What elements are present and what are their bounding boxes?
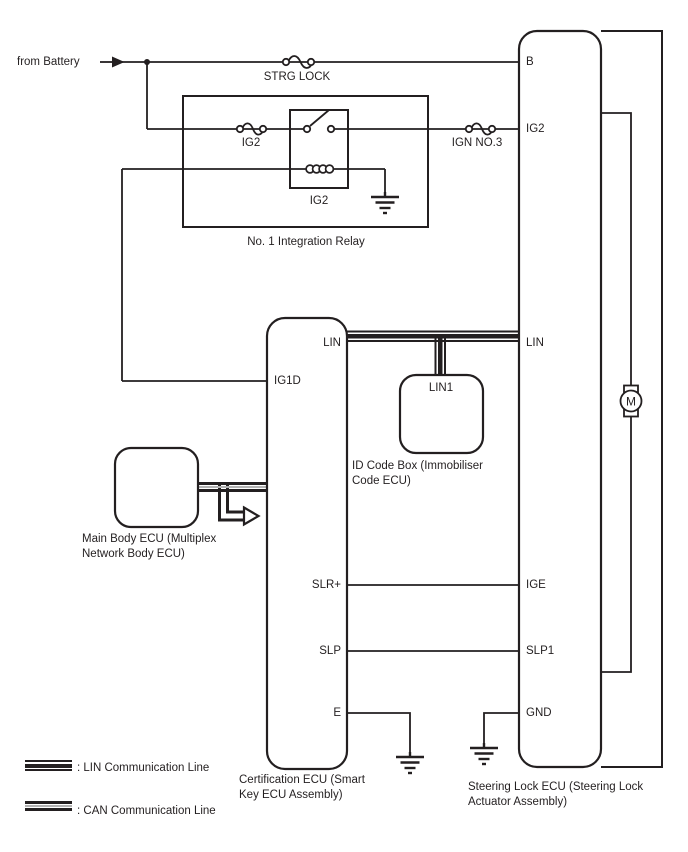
steering-lock-ecu-caption: Steering Lock ECU (Steering Lock Actuato… [468,780,643,810]
terminal-slp1: SLP1 [526,644,554,659]
terminal-slr-plus: SLR+ [291,578,341,593]
relay-switch-icon [304,110,334,132]
certification-ecu-caption: Certification ECU (Smart Key ECU Assembl… [239,773,365,803]
lin-line [347,331,519,343]
relay-name-label: No. 1 Integration Relay [196,235,416,250]
terminal-slp: SLP [291,644,341,659]
can-line [198,482,267,492]
ground-icon-e [396,752,424,773]
lin-legend-label: : LIN Communication Line [77,761,209,776]
terminal-ig2: IG2 [526,122,545,137]
motor-icon: M [621,386,642,417]
strg-lock-fuse-label: STRG LOCK [250,70,344,85]
motor-label: M [626,395,636,409]
id-code-box-caption: ID Code Box (Immobiliser Code ECU) [352,459,483,489]
main-body-ecu-caption: Main Body ECU (Multiplex Network Body EC… [82,532,216,562]
ig1d-wire [122,169,267,381]
ground-icon-gnd [470,743,498,764]
can-line-sample-icon [25,801,72,811]
can-arrow-icon [244,508,259,525]
terminal-wires [347,585,519,753]
terminal-lin-cert: LIN [291,336,341,351]
terminal-ig1d: IG1D [274,374,301,389]
diagram-artwork: M [0,0,688,852]
ign-no3-fuse-label: IGN NO.3 [437,136,517,151]
from-battery-label: from Battery [17,55,80,70]
relay-coil-icon [306,165,333,173]
main-body-ecu-box [115,448,198,527]
terminal-gnd: GND [526,706,552,721]
terminal-ige: IGE [526,578,546,593]
can-legend-label: : CAN Communication Line [77,804,216,819]
terminal-b: B [526,55,534,70]
terminal-e: E [291,706,341,721]
wiring-diagram: M [0,0,688,852]
relay-coil-label: IG2 [289,194,349,209]
terminal-lin1: LIN1 [411,381,471,396]
lin-line-sample-icon [25,760,72,771]
ground-icon-relay [371,192,399,213]
ig2-fuse-label: IG2 [221,136,281,151]
terminal-lin-steering: LIN [526,336,544,351]
